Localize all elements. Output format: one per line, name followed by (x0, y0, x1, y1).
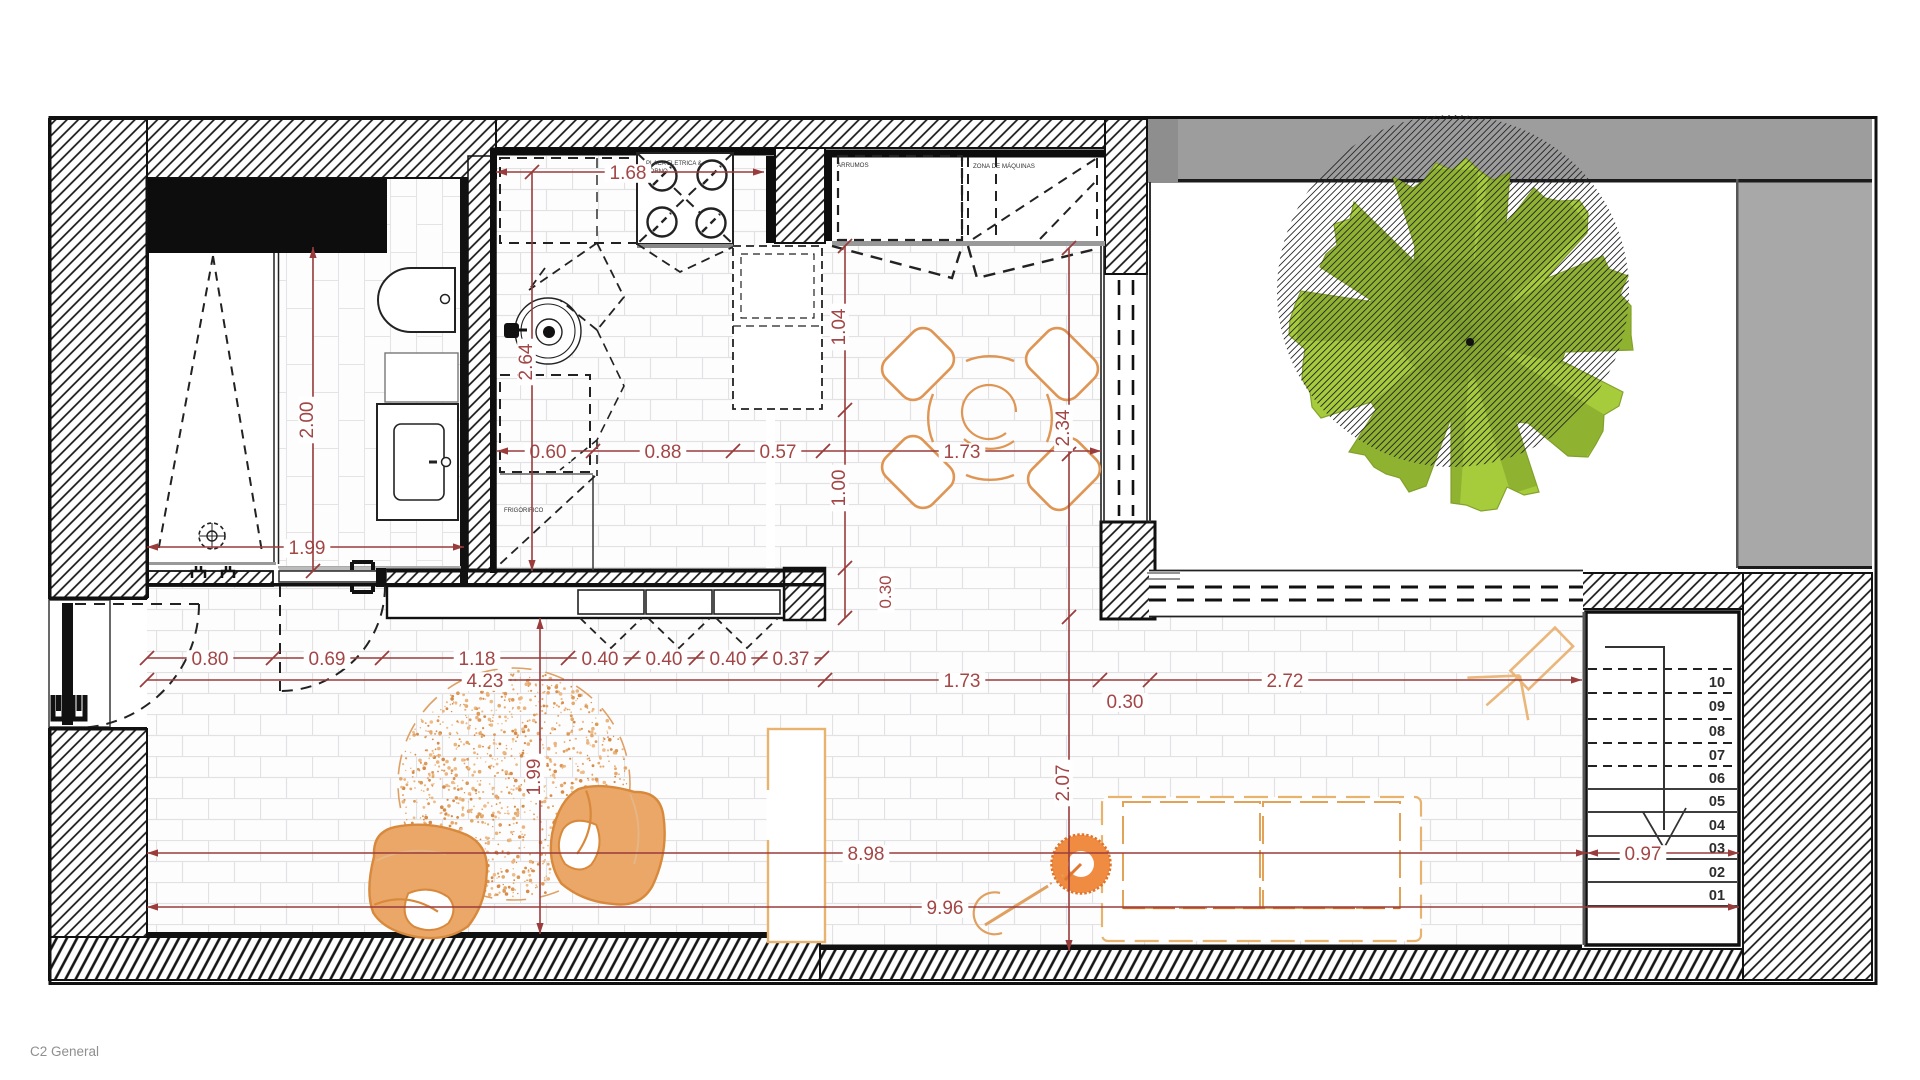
svg-text:06: 06 (1709, 771, 1725, 787)
svg-text:08: 08 (1709, 724, 1725, 740)
svg-text:1.73: 1.73 (944, 442, 981, 463)
svg-text:4.23: 4.23 (467, 671, 504, 692)
svg-text:1.68: 1.68 (610, 163, 647, 184)
svg-text:9.96: 9.96 (927, 898, 964, 919)
svg-text:2.72: 2.72 (1267, 671, 1304, 692)
svg-text:0.57: 0.57 (760, 442, 797, 463)
svg-text:09: 09 (1709, 699, 1725, 715)
svg-text:0.80: 0.80 (192, 649, 229, 670)
svg-text:1.99: 1.99 (524, 759, 545, 796)
svg-text:ARRUMOS: ARRUMOS (837, 162, 869, 169)
svg-text:2.00: 2.00 (297, 402, 318, 439)
svg-text:0.40: 0.40 (710, 649, 747, 670)
svg-text:0.30: 0.30 (876, 575, 895, 608)
svg-text:05: 05 (1709, 794, 1725, 810)
svg-text:10: 10 (1709, 675, 1725, 691)
svg-text:03: 03 (1709, 841, 1725, 857)
svg-text:2.07: 2.07 (1053, 765, 1074, 802)
svg-text:0.97: 0.97 (1625, 844, 1662, 865)
svg-text:0.40: 0.40 (582, 649, 619, 670)
svg-text:1.73: 1.73 (944, 671, 981, 692)
svg-text:8.98: 8.98 (848, 844, 885, 865)
svg-text:02: 02 (1709, 865, 1725, 881)
svg-text:1.18: 1.18 (459, 649, 496, 670)
svg-text:0.30: 0.30 (1107, 692, 1144, 713)
svg-text:PLACA ELETRICA &: PLACA ELETRICA & (646, 161, 702, 167)
svg-text:FRIGORIFICO: FRIGORIFICO (504, 508, 544, 514)
svg-text:2.64: 2.64 (516, 343, 537, 380)
svg-text:0.37: 0.37 (773, 649, 810, 670)
svg-text:1.00: 1.00 (829, 470, 850, 507)
svg-text:0.69: 0.69 (309, 649, 346, 670)
svg-text:2.34: 2.34 (1053, 409, 1074, 446)
svg-text:C2 General: C2 General (30, 1044, 99, 1059)
svg-text:04: 04 (1709, 818, 1725, 834)
svg-text:01: 01 (1709, 888, 1725, 904)
svg-text:07: 07 (1709, 748, 1725, 764)
svg-text:1.99: 1.99 (289, 538, 326, 559)
svg-text:0.40: 0.40 (646, 649, 683, 670)
svg-text:0.88: 0.88 (645, 442, 682, 463)
svg-text:ZONA DE MÁQUINAS: ZONA DE MÁQUINAS (973, 163, 1035, 170)
svg-text:0.60: 0.60 (530, 442, 567, 463)
svg-text:1.04: 1.04 (829, 308, 850, 345)
